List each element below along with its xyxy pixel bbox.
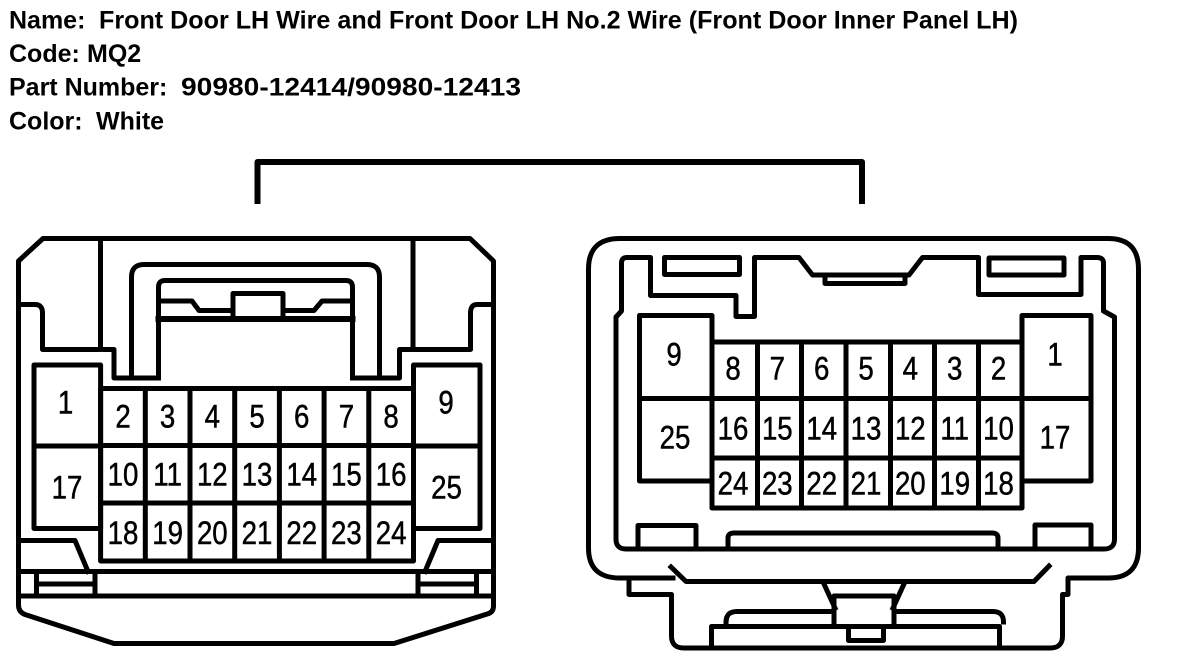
svg-text:15: 15	[762, 411, 793, 447]
svg-text:21: 21	[242, 516, 273, 552]
svg-text:11: 11	[940, 411, 969, 447]
svg-text:23: 23	[762, 466, 793, 502]
svg-text:8: 8	[725, 351, 740, 387]
svg-text:Code:MQ2: Code:MQ2	[9, 40, 141, 68]
svg-text:8: 8	[383, 399, 398, 435]
svg-text:2: 2	[115, 399, 130, 435]
svg-text:5: 5	[249, 399, 264, 435]
svg-text:24: 24	[376, 516, 407, 552]
svg-text:2: 2	[991, 351, 1006, 387]
svg-text:4: 4	[205, 399, 220, 435]
svg-text:1: 1	[58, 385, 73, 421]
svg-text:9: 9	[438, 385, 453, 421]
svg-text:3: 3	[160, 399, 175, 435]
svg-text:17: 17	[1040, 420, 1071, 456]
svg-text:19: 19	[152, 516, 183, 552]
svg-text:24: 24	[718, 466, 749, 502]
svg-text:10: 10	[983, 411, 1014, 447]
svg-text:20: 20	[895, 466, 926, 502]
svg-text:14: 14	[806, 411, 837, 447]
svg-text:3: 3	[947, 351, 962, 387]
svg-text:16: 16	[718, 411, 749, 447]
svg-text:25: 25	[431, 470, 462, 506]
svg-text:15: 15	[331, 457, 362, 493]
svg-text:12: 12	[895, 411, 926, 447]
svg-text:1: 1	[1047, 337, 1062, 373]
svg-text:12: 12	[197, 457, 228, 493]
svg-text:23: 23	[331, 516, 362, 552]
svg-text:4: 4	[903, 351, 918, 387]
svg-text:18: 18	[983, 466, 1014, 502]
svg-text:6: 6	[814, 351, 829, 387]
svg-text:7: 7	[770, 351, 785, 387]
svg-text:13: 13	[242, 457, 273, 493]
svg-text:25: 25	[660, 420, 691, 456]
svg-text:7: 7	[339, 399, 354, 435]
svg-text:20: 20	[197, 516, 228, 552]
svg-text:17: 17	[52, 470, 83, 506]
svg-text:18: 18	[108, 516, 139, 552]
svg-text:Name:Front Door LH Wire and Fr: Name:Front Door LH Wire and Front Door L…	[9, 7, 1018, 35]
svg-text:16: 16	[376, 457, 407, 493]
svg-text:21: 21	[851, 466, 882, 502]
svg-text:11: 11	[153, 457, 182, 493]
svg-text:5: 5	[858, 351, 873, 387]
svg-text:13: 13	[851, 411, 882, 447]
svg-text:10: 10	[108, 457, 139, 493]
svg-text:6: 6	[294, 399, 309, 435]
svg-text:14: 14	[286, 457, 317, 493]
svg-text:Color:White: Color:White	[9, 108, 164, 136]
svg-text:22: 22	[286, 516, 317, 552]
svg-text:19: 19	[939, 466, 970, 502]
svg-text:22: 22	[806, 466, 837, 502]
svg-text:Part Number:90980-12414/90980-: Part Number:90980-12414/90980-12413	[9, 74, 521, 102]
svg-text:9: 9	[666, 337, 681, 373]
